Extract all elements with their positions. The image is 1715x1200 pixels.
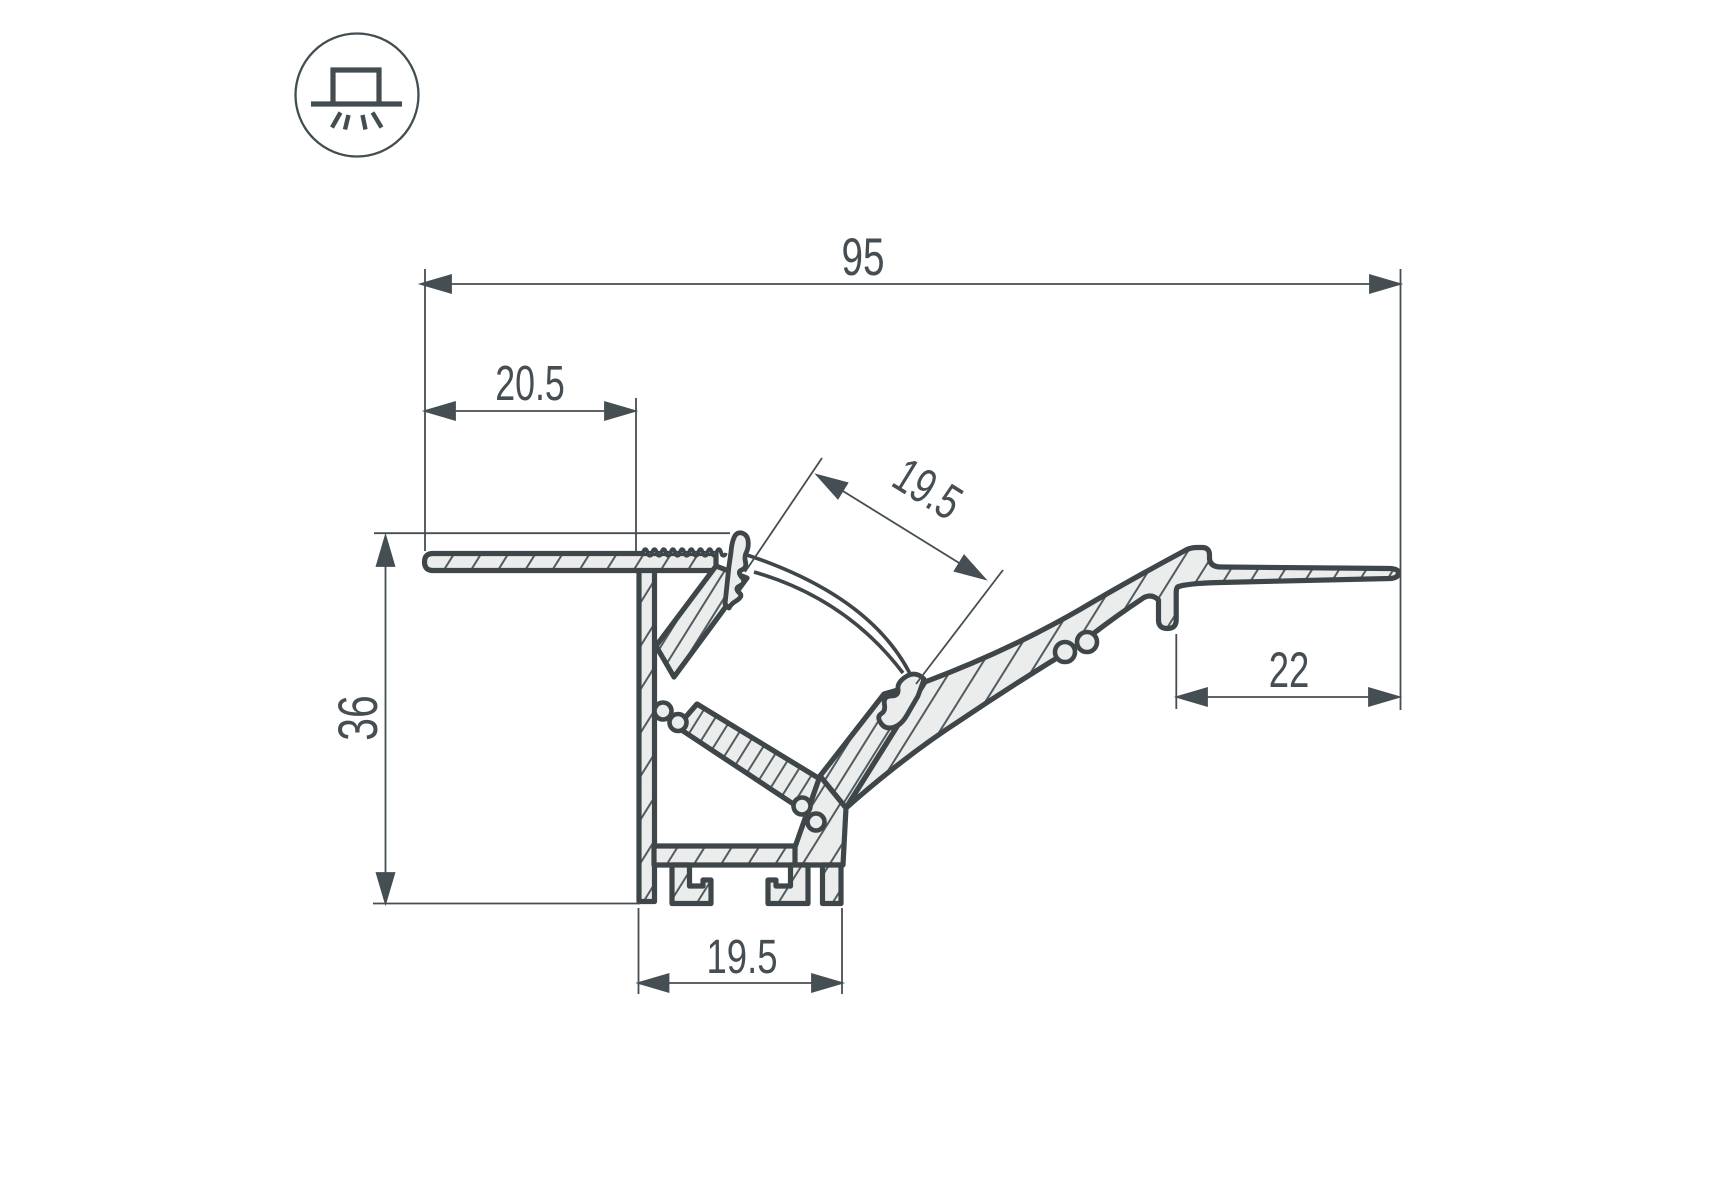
svg-text:20.5: 20.5 — [495, 357, 565, 412]
svg-text:36: 36 — [328, 695, 390, 740]
svg-text:19.5: 19.5 — [707, 930, 778, 984]
svg-text:95: 95 — [841, 227, 884, 286]
svg-text:22: 22 — [1269, 642, 1310, 698]
svg-text:19.5: 19.5 — [883, 448, 971, 531]
